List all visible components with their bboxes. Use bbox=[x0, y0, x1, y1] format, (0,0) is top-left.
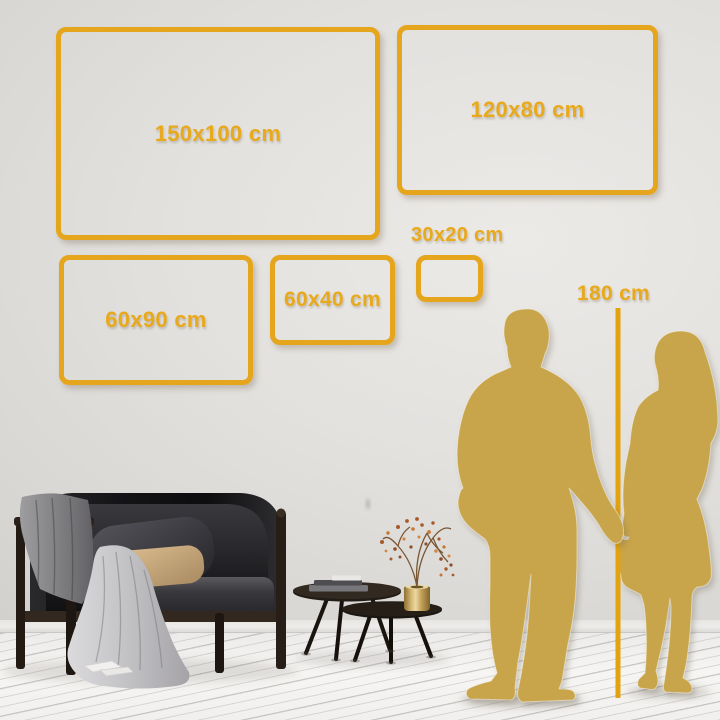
size-frame-60x40: 60x40 cm bbox=[270, 255, 395, 345]
size-label-30x20: 30x20 cm bbox=[411, 224, 503, 247]
wall-mark bbox=[366, 499, 370, 510]
size-label-120x80: 120x80 cm bbox=[470, 97, 584, 123]
size-frame-150x100: 150x100 cm bbox=[56, 27, 380, 240]
coffee-tables bbox=[293, 517, 454, 665]
coffee-table-large bbox=[293, 582, 401, 659]
size-label-60x90: 60x90 cm bbox=[105, 307, 207, 333]
size-label-60x40: 60x40 cm bbox=[284, 288, 381, 312]
books bbox=[309, 576, 368, 592]
dried-plant bbox=[380, 517, 454, 587]
height-marker-line bbox=[616, 308, 621, 698]
size-guide-stage: 150x100 cm 120x80 cm 60x90 cm 60x40 cm 3… bbox=[0, 0, 720, 720]
size-frame-120x80: 120x80 cm bbox=[397, 25, 658, 195]
height-reference-label: 180 cm bbox=[577, 282, 650, 306]
sofa bbox=[14, 493, 286, 689]
man-silhouette bbox=[457, 309, 623, 702]
size-label-150x100: 150x100 cm bbox=[155, 121, 282, 147]
woman-silhouette bbox=[619, 331, 718, 693]
size-frame-30x20 bbox=[416, 255, 483, 302]
size-frame-60x90: 60x90 cm bbox=[59, 255, 253, 385]
brass-vase bbox=[404, 585, 431, 611]
